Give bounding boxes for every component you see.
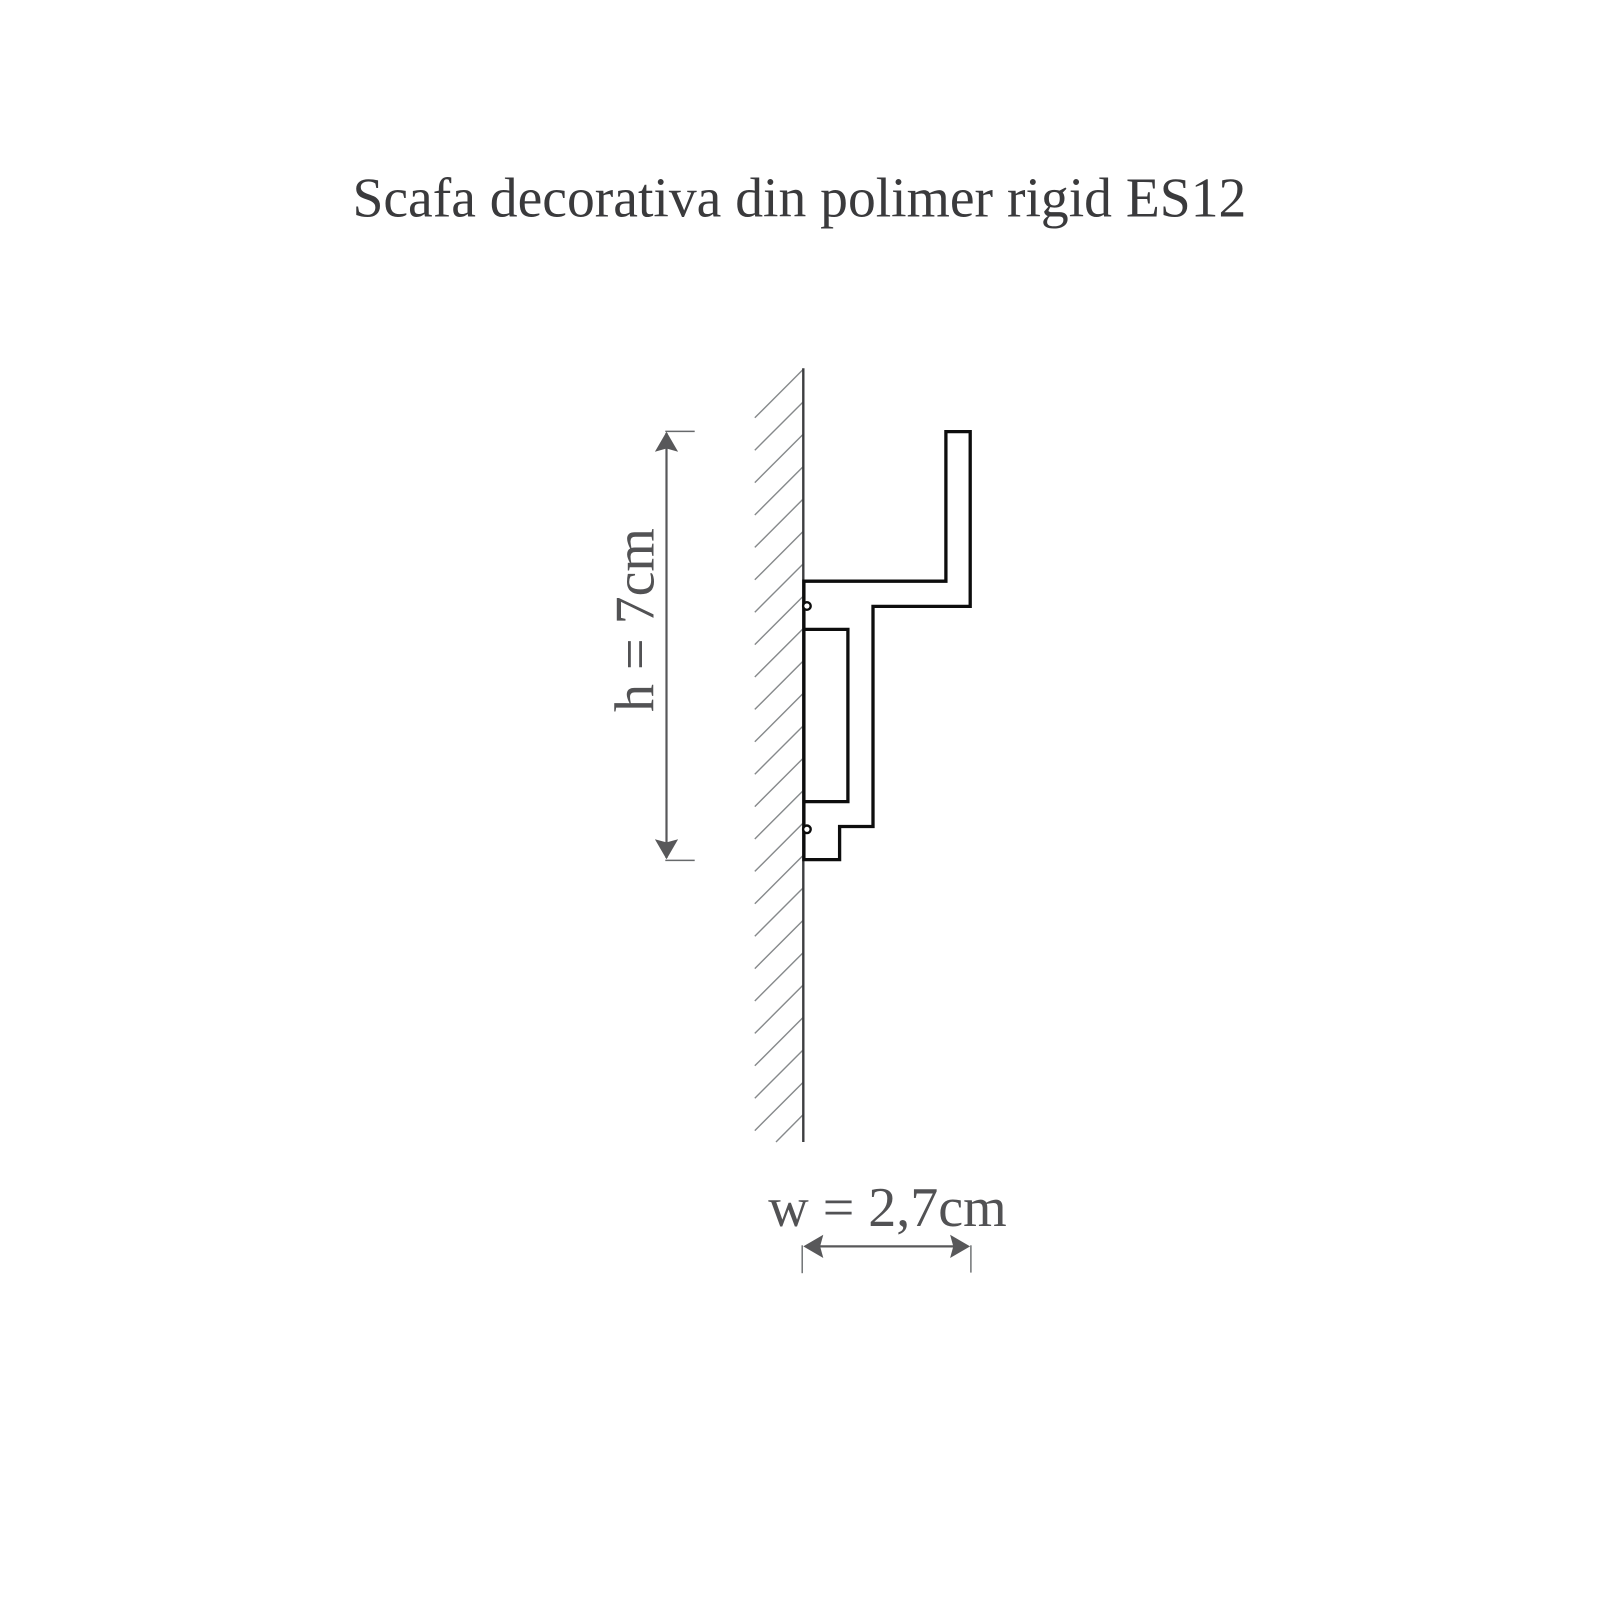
svg-text:w = 2,7cm: w = 2,7cm	[768, 1177, 1006, 1239]
svg-text:Scafa decorativa din polimer r: Scafa decorativa din polimer rigid ES12	[352, 167, 1246, 229]
svg-text:h = 7cm: h = 7cm	[605, 528, 667, 712]
